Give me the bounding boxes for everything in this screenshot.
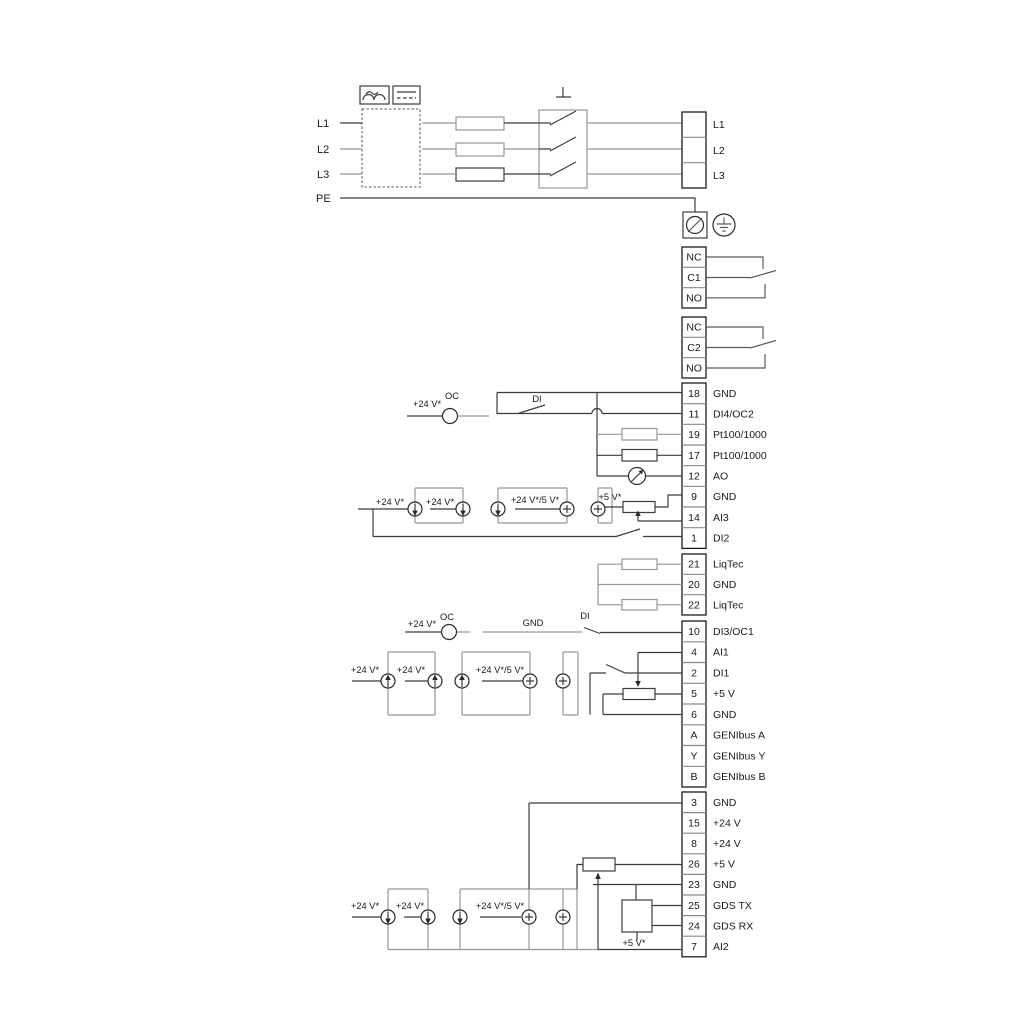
label-5v-b: +5 V* xyxy=(598,492,621,502)
term-y: Y xyxy=(690,750,697,762)
analog-output-meter-icon xyxy=(629,468,646,485)
term-15-label: +24 V xyxy=(713,817,741,829)
section-di4-pt100-ao: +24 V* OC DI xyxy=(407,391,682,485)
terminal-group3: 10 DI3/OC1 4 AI1 2 DI1 5 +5 V 6 GND A GE… xyxy=(682,621,766,787)
voltage-source-icon xyxy=(522,910,536,924)
potentiometer-ai2 xyxy=(583,858,615,871)
power-wires-gray xyxy=(340,123,682,174)
label-pe-in: PE xyxy=(316,193,331,205)
term-3-label: GND xyxy=(713,797,737,809)
term-2: 2 xyxy=(691,667,697,679)
term-5: 5 xyxy=(691,688,697,700)
potentiometer-ai1 xyxy=(623,689,655,700)
label-24v-d2: +24 V* xyxy=(396,901,425,911)
relay2-no: NO xyxy=(686,362,702,374)
term-17: 17 xyxy=(688,450,700,462)
term-y-label: GENIbus Y xyxy=(713,750,765,762)
liqtec-wires xyxy=(598,564,682,605)
label-24v-c1: +24 V* xyxy=(351,665,380,675)
voltage-source-icon xyxy=(556,910,570,924)
relay1-no: NO xyxy=(686,292,702,304)
filter-box xyxy=(362,109,420,187)
main-switch xyxy=(539,87,587,188)
term-20-label: GND xyxy=(713,579,737,591)
term-25: 25 xyxy=(688,900,700,912)
section-gds-ai2: +24 V* +24 V* +24 V*/5 V* +5 V* xyxy=(351,803,682,950)
label-l1-in: L1 xyxy=(317,118,329,130)
potentiometer-ai3 xyxy=(623,502,655,513)
term-a: A xyxy=(690,730,697,742)
label-l3-out: L3 xyxy=(713,170,725,182)
voltage-source-icon xyxy=(556,674,570,688)
voltage-source-icon xyxy=(560,502,574,516)
oc-contact-icon xyxy=(443,409,458,424)
relay1-c1: C1 xyxy=(687,272,701,284)
term-21-label: LiqTec xyxy=(713,559,743,571)
secA-wires-black xyxy=(407,393,682,477)
wiring-diagram: L1 L2 L3 PE xyxy=(0,0,1024,1024)
term-14: 14 xyxy=(688,512,700,524)
terminal-group4: 3 GND 15 +24 V 8 +24 V 26 +5 V 23 GND 25… xyxy=(682,792,753,957)
label-24v-b1: +24 V* xyxy=(376,497,405,507)
secD-wires xyxy=(352,803,682,950)
term-1: 1 xyxy=(691,533,697,545)
terminal-group2: 21 LiqTec 20 GND 22 LiqTec xyxy=(598,554,743,615)
mains-input-section: L1 L2 L3 PE xyxy=(316,86,735,238)
relay2-block: NC C2 NO xyxy=(682,317,776,378)
current-source-icon xyxy=(455,674,469,688)
section-ai3-di2: +24 V* +24 V* +24 V*/5 V* +5 V* xyxy=(358,488,682,537)
term-25-label: GDS TX xyxy=(713,900,752,912)
term-3: 3 xyxy=(691,797,697,809)
term-8: 8 xyxy=(691,838,697,850)
fuse-l2 xyxy=(456,143,504,156)
pe-screw-terminal-icon xyxy=(683,212,707,238)
label-di-a: DI xyxy=(532,394,541,404)
power-wires-black xyxy=(340,123,695,212)
terminal-group1: 18 GND 11 DI4/OC2 19 Pt100/1000 17 Pt100… xyxy=(682,383,767,548)
label-di-c: DI xyxy=(580,611,589,621)
term-a-label: GENIbus A xyxy=(713,730,765,742)
relay1-contact xyxy=(706,257,776,298)
term-24: 24 xyxy=(688,920,700,932)
label-gnd-c: GND xyxy=(523,618,544,628)
voltage-source-icon xyxy=(591,502,605,516)
term-4: 4 xyxy=(691,647,697,659)
term-23-label: GND xyxy=(713,879,737,891)
term-18: 18 xyxy=(688,388,700,400)
term-b: B xyxy=(690,771,697,783)
term-2-label: DI1 xyxy=(713,667,730,679)
ac-wave-icon xyxy=(360,86,389,104)
current-source-icon xyxy=(421,910,435,924)
mains-terminal-block: L1 L2 L3 xyxy=(682,112,725,188)
term-11: 11 xyxy=(689,409,700,421)
secC-frames xyxy=(388,652,578,715)
label-l1-out: L1 xyxy=(713,119,725,131)
current-source-icon xyxy=(381,674,395,688)
term-19-label: Pt100/1000 xyxy=(713,429,767,441)
term-24-label: GDS RX xyxy=(713,920,753,932)
current-source-icon xyxy=(381,910,395,924)
pt100-resistor-19 xyxy=(622,429,657,441)
secC-wires xyxy=(352,653,682,715)
label-oc-a: OC xyxy=(445,391,459,401)
term-1-label: DI2 xyxy=(713,533,730,545)
term-22: 22 xyxy=(688,599,700,611)
term-17-label: Pt100/1000 xyxy=(713,450,767,462)
term-19: 19 xyxy=(688,429,700,441)
earth-ground-icon xyxy=(713,214,735,236)
label-24v5v-c: +24 V*/5 V* xyxy=(476,665,525,675)
term-10-label: DI3/OC1 xyxy=(713,626,754,638)
ai1-arrow xyxy=(635,681,641,687)
term-14-label: AI3 xyxy=(713,512,729,524)
label-24v5v-b: +24 V*/5 V* xyxy=(511,495,560,505)
current-source-icon xyxy=(408,502,422,516)
label-l3-in: L3 xyxy=(317,169,329,181)
wiring-diagram-page: L1 L2 L3 PE xyxy=(0,0,1024,1024)
term-26-label: +5 V xyxy=(713,859,735,871)
fuse-l3 xyxy=(456,168,504,181)
term-22-label: LiqTec xyxy=(713,599,743,611)
label-24v-c0: +24 V* xyxy=(408,619,437,629)
liqtec-resistor-22 xyxy=(622,600,657,611)
relay1-nc: NC xyxy=(686,252,702,264)
term-21: 21 xyxy=(688,559,700,571)
label-24v-d1: +24 V* xyxy=(351,901,380,911)
term-6: 6 xyxy=(691,709,697,721)
relay1-block: NC C1 NO xyxy=(682,247,776,308)
current-source-icon xyxy=(491,502,505,516)
label-24v-c2: +24 V* xyxy=(397,665,426,675)
oc-contact-icon xyxy=(442,625,457,640)
relay2-contact xyxy=(706,327,776,368)
term-7: 7 xyxy=(691,941,697,953)
label-oc-c: OC xyxy=(440,612,454,622)
relay2-c2: C2 xyxy=(687,342,701,354)
label-24v-b2: +24 V* xyxy=(426,497,455,507)
term-18-label: GND xyxy=(713,388,737,400)
term-12-label: AO xyxy=(713,471,728,483)
pot-wiper-arrow-ai3 xyxy=(635,511,641,517)
term-11-label: DI4/OC2 xyxy=(713,409,754,421)
label-l2-in: L2 xyxy=(317,144,329,156)
label-l2-out: L2 xyxy=(713,145,725,157)
dc-symbol-icon xyxy=(393,86,420,104)
pot-wiper-arrow-ai2 xyxy=(595,873,601,880)
current-source-icon xyxy=(456,502,470,516)
label-5v-gds: +5 V* xyxy=(622,938,645,948)
current-source-icon xyxy=(428,674,442,688)
term-7-label: AI2 xyxy=(713,941,729,953)
term-9: 9 xyxy=(691,491,697,503)
term-4-label: AI1 xyxy=(713,647,729,659)
term-8-label: +24 V xyxy=(713,838,741,850)
label-24v-a: +24 V* xyxy=(413,399,442,409)
relay2-nc: NC xyxy=(686,322,702,334)
term-23: 23 xyxy=(688,879,700,891)
term-26: 26 xyxy=(688,859,700,871)
fuse-l1 xyxy=(456,117,504,130)
section-di3-ai1: +24 V* OC GND DI +24 V* +24 V* +24 V*/5 … xyxy=(351,611,682,715)
term-6-label: GND xyxy=(713,709,737,721)
term-b-label: GENIbus B xyxy=(713,771,766,783)
term-20: 20 xyxy=(688,579,700,591)
secA-wires-gray xyxy=(458,416,683,434)
term-10: 10 xyxy=(688,626,700,638)
term-12: 12 xyxy=(688,471,700,483)
term-5-label: +5 V xyxy=(713,688,735,700)
term-15: 15 xyxy=(688,817,700,829)
pt100-resistor-17 xyxy=(622,450,657,462)
voltage-source-icon xyxy=(523,674,537,688)
label-24v5v-d: +24 V*/5 V* xyxy=(476,901,525,911)
liqtec-resistor-21 xyxy=(622,559,657,570)
term-9-label: GND xyxy=(713,491,737,503)
current-source-icon xyxy=(453,910,467,924)
gds-sensor-box xyxy=(622,900,652,932)
